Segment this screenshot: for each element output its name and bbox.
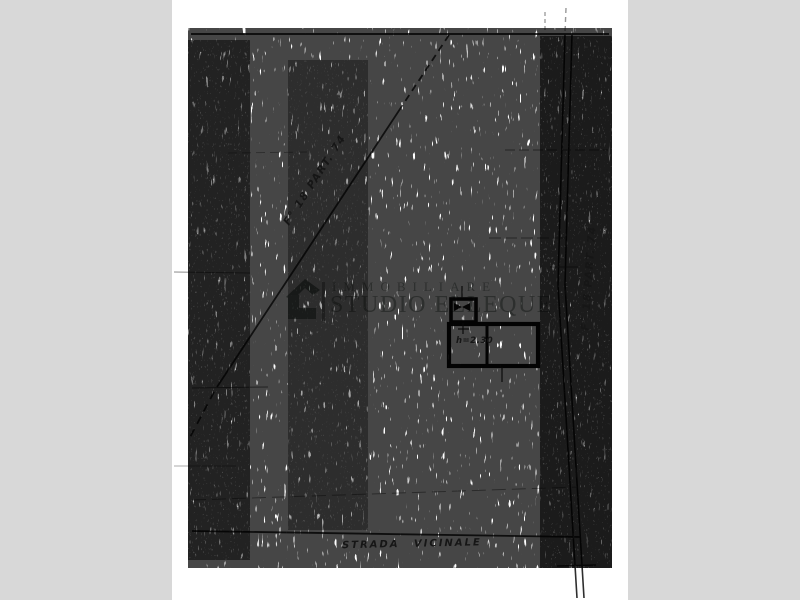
scan-paper xyxy=(172,0,628,600)
building-height-label: h=2.30 xyxy=(456,336,493,346)
scanned-cadastral-map: IMMOBILIARE STUDIO ELLEQUE xyxy=(0,0,800,600)
